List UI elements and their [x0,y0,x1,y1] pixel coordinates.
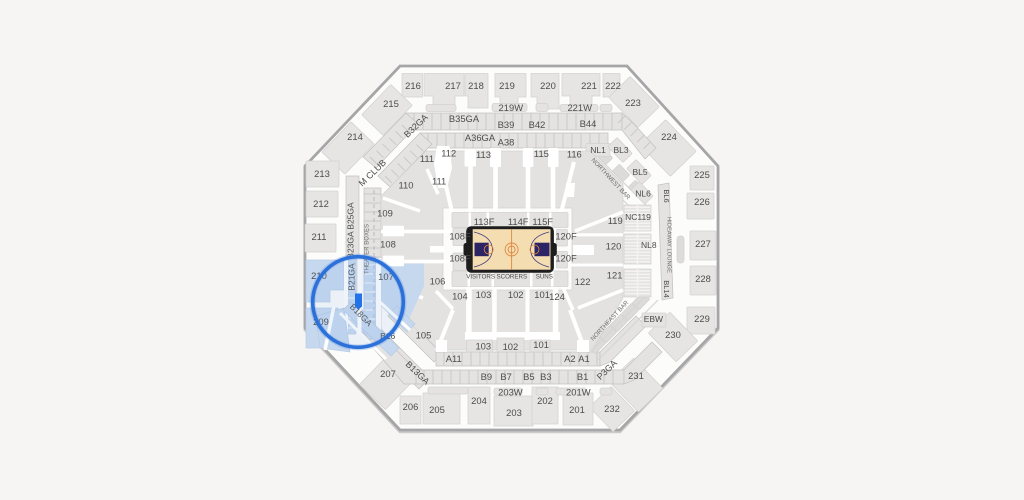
svg-text:119: 119 [608,215,623,226]
svg-text:EBW: EBW [644,314,663,324]
svg-text:104: 104 [452,291,468,302]
svg-text:SCORERS: SCORERS [496,274,527,281]
svg-text:NC119: NC119 [625,212,651,222]
svg-text:116: 116 [567,149,582,160]
svg-text:NL6: NL6 [635,189,651,199]
svg-text:206: 206 [403,401,419,412]
svg-text:231: 231 [628,370,644,381]
svg-text:220: 220 [540,80,556,91]
svg-text:211: 211 [312,231,327,242]
svg-text:B35GA: B35GA [449,113,480,124]
svg-text:115F: 115F [532,216,553,227]
svg-text:229: 229 [694,313,710,324]
svg-text:120F: 120F [555,231,577,242]
svg-text:214: 214 [347,131,363,142]
svg-text:A36GA: A36GA [465,132,496,143]
svg-text:219W: 219W [499,102,524,113]
svg-text:205: 205 [429,404,445,415]
svg-text:A2: A2 [564,353,575,364]
svg-text:101: 101 [534,289,550,300]
svg-text:228: 228 [695,273,711,284]
svg-text:B5: B5 [523,371,534,382]
svg-text:SUNS: SUNS [536,274,553,281]
svg-text:112: 112 [441,148,456,159]
svg-text:232: 232 [604,403,620,414]
svg-text:102: 102 [503,341,519,352]
svg-text:218: 218 [468,80,484,91]
svg-text:215: 215 [383,98,399,109]
svg-text:NL8: NL8 [641,240,657,250]
svg-text:102: 102 [508,289,524,300]
svg-text:BL14: BL14 [662,280,671,298]
svg-text:B1: B1 [577,371,588,382]
svg-text:A11: A11 [446,353,462,364]
svg-text:213: 213 [314,168,330,179]
svg-text:106: 106 [430,276,446,287]
svg-text:115: 115 [534,148,549,159]
svg-text:221W: 221W [567,102,592,113]
svg-text:B44: B44 [580,118,597,129]
svg-text:105: 105 [416,330,432,341]
svg-text:120: 120 [606,240,622,251]
svg-text:226: 226 [694,196,710,207]
svg-text:113F: 113F [474,216,495,227]
svg-text:230: 230 [665,329,681,340]
svg-text:111: 111 [420,153,434,164]
svg-text:221: 221 [581,80,597,91]
svg-text:207: 207 [380,368,396,379]
svg-text:201: 201 [569,404,585,415]
svg-text:219: 219 [499,80,515,91]
svg-text:BL6: BL6 [662,189,671,202]
svg-text:HIDEAWAY LOUNGE: HIDEAWAY LOUNGE [666,217,672,273]
svg-text:217: 217 [445,80,461,91]
svg-text:B25GA: B25GA [346,202,356,230]
svg-text:101: 101 [533,339,549,350]
svg-text:212: 212 [313,198,329,209]
svg-text:103: 103 [476,289,492,300]
svg-text:108F: 108F [449,253,471,264]
svg-text:A38: A38 [498,137,515,148]
svg-text:120F: 120F [555,253,577,264]
svg-text:B42: B42 [529,119,546,130]
svg-text:201W: 201W [566,387,591,398]
svg-text:BL5: BL5 [632,167,647,177]
svg-text:202: 202 [537,395,553,406]
svg-text:113: 113 [476,149,491,160]
svg-text:A1: A1 [578,353,589,364]
svg-text:224: 224 [661,131,677,142]
svg-text:109: 109 [377,208,393,219]
svg-text:B7: B7 [500,371,511,382]
svg-text:108: 108 [380,238,396,249]
svg-text:B9: B9 [481,371,492,382]
svg-text:B3: B3 [540,371,551,382]
svg-text:203: 203 [506,407,522,418]
svg-text:222: 222 [605,80,621,91]
svg-text:VISITORS: VISITORS [466,274,495,281]
svg-text:227: 227 [695,238,711,249]
svg-text:225: 225 [694,169,710,180]
svg-text:B39: B39 [498,119,515,130]
svg-text:223: 223 [625,97,641,108]
svg-text:108F: 108F [449,231,471,242]
svg-text:110: 110 [399,180,414,191]
svg-text:NL1: NL1 [590,145,606,155]
svg-text:114F: 114F [508,216,529,227]
svg-text:BL3: BL3 [613,145,628,155]
svg-text:122: 122 [575,276,591,287]
svg-text:216: 216 [405,80,421,91]
svg-text:203W: 203W [498,387,523,398]
svg-text:124: 124 [549,291,565,302]
svg-text:111: 111 [432,176,446,187]
svg-text:121: 121 [607,270,623,281]
svg-text:103: 103 [475,341,491,352]
svg-text:204: 204 [471,395,487,406]
